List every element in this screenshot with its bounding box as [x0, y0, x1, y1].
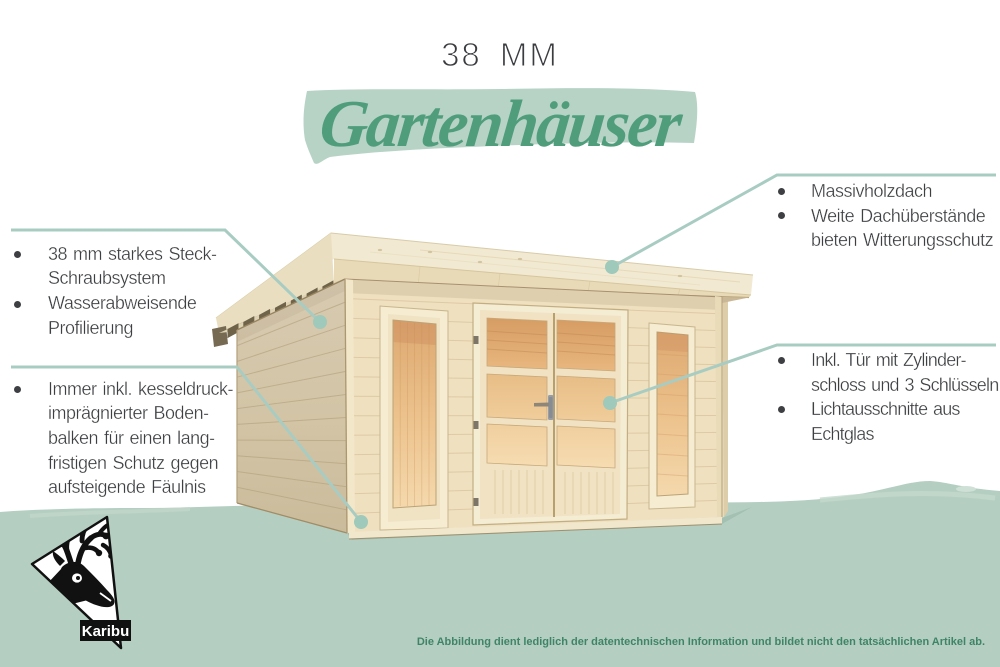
svg-text:Karibu: Karibu — [82, 623, 130, 640]
